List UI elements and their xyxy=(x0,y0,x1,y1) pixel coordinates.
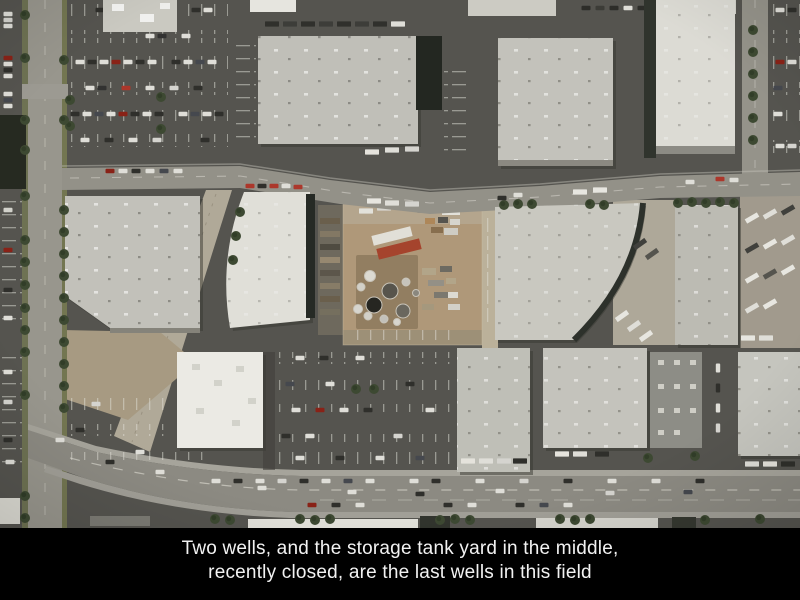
aerial-photo xyxy=(0,0,800,528)
slide: Two wells, and the storage tank yard in … xyxy=(0,0,800,600)
vignette xyxy=(0,0,800,528)
caption-line-2: recently closed, are the last wells in t… xyxy=(0,561,800,585)
aerial-photo-canvas xyxy=(0,0,800,528)
caption-line-1: Two wells, and the storage tank yard in … xyxy=(0,537,800,561)
caption-bar: Two wells, and the storage tank yard in … xyxy=(0,528,800,600)
